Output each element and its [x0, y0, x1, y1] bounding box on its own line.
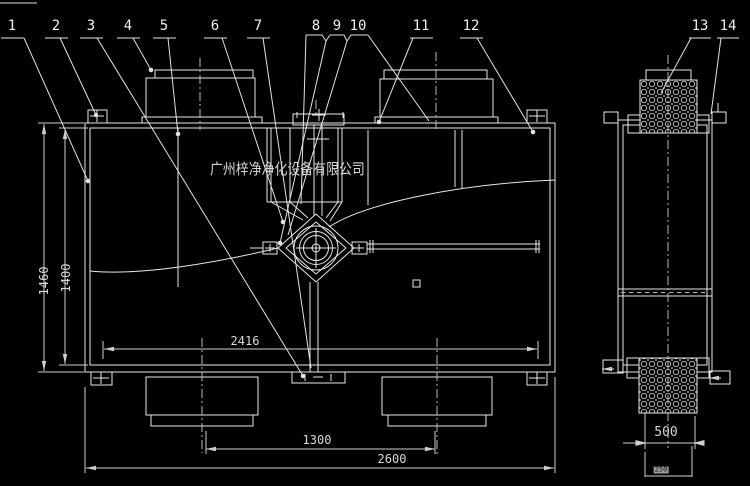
callout-2: 2	[52, 19, 60, 33]
callout-leaders	[0, 3, 739, 378]
callout-4: 4	[124, 19, 132, 33]
partitions	[178, 128, 462, 287]
callout-10: 10	[350, 19, 367, 33]
callout-8: 8	[312, 19, 320, 33]
dim-inner-width: 2416	[231, 335, 260, 347]
callout-12: 12	[463, 19, 480, 33]
callout-5: 5	[160, 19, 168, 33]
cad-linework	[0, 0, 750, 486]
callout-14: 14	[720, 19, 737, 33]
callout-11: 11	[413, 19, 430, 33]
cad-viewport[interactable]: 1 2 3 4 5 6 7 8 9 10 11 12 13 14 1460 14…	[0, 0, 750, 486]
dim-outlet-spacing: 1300	[303, 434, 332, 446]
company-watermark: 广州梓净净化设备有限公司	[210, 162, 365, 177]
dim-overall-width: 2600	[378, 453, 407, 465]
dimension-lines	[38, 123, 704, 477]
dim-side-width: 500	[654, 426, 677, 439]
scroll-curve-left	[90, 248, 278, 272]
side-view	[602, 70, 730, 413]
dim-side-port: 250	[654, 467, 669, 474]
dim-height-outer: 1460	[38, 267, 50, 296]
sensor-marker	[413, 280, 420, 287]
scroll-curve-right	[329, 180, 555, 227]
callout-3: 3	[87, 19, 95, 33]
top-left-duct	[142, 70, 262, 123]
tie-rod	[367, 240, 540, 253]
callout-7: 7	[254, 19, 262, 33]
side-brackets	[602, 103, 730, 384]
fan-assembly	[250, 214, 367, 282]
front-view	[85, 70, 555, 426]
callout-1: 1	[8, 19, 16, 33]
drain-channel	[292, 282, 345, 383]
dim-height-inner: 1400	[60, 264, 72, 293]
callout-6: 6	[211, 19, 219, 33]
callout-9: 9	[333, 19, 341, 33]
body-joint	[618, 289, 712, 296]
callout-13: 13	[692, 19, 709, 33]
